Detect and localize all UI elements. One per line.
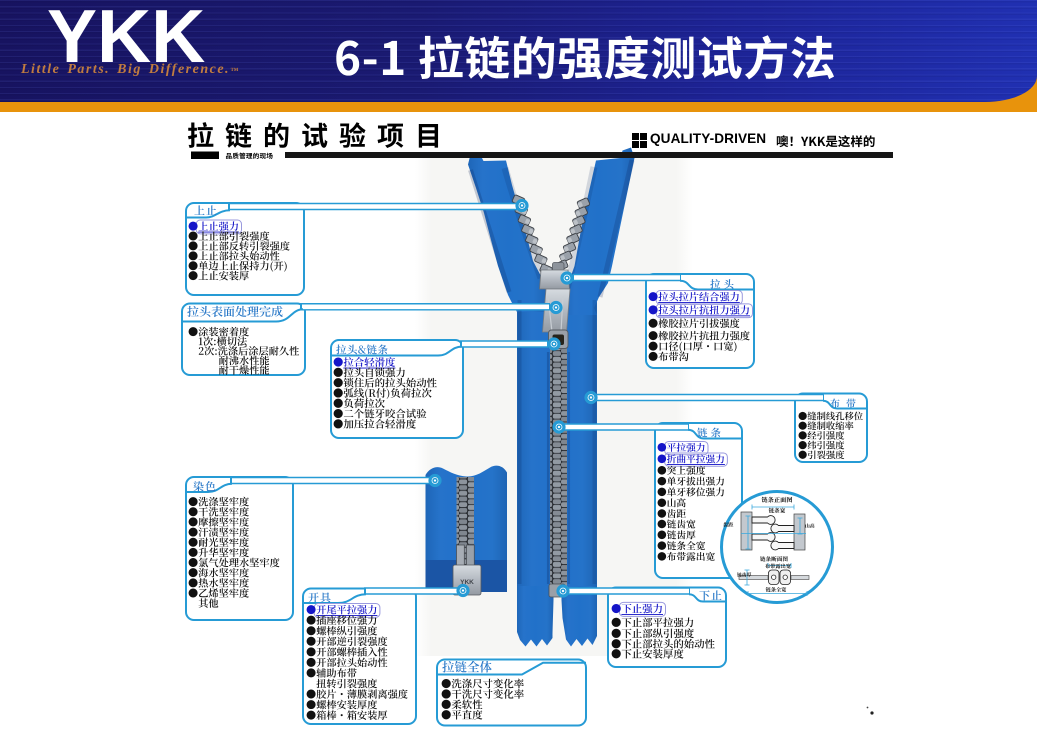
svg-text:YKK: YKK (460, 579, 474, 586)
